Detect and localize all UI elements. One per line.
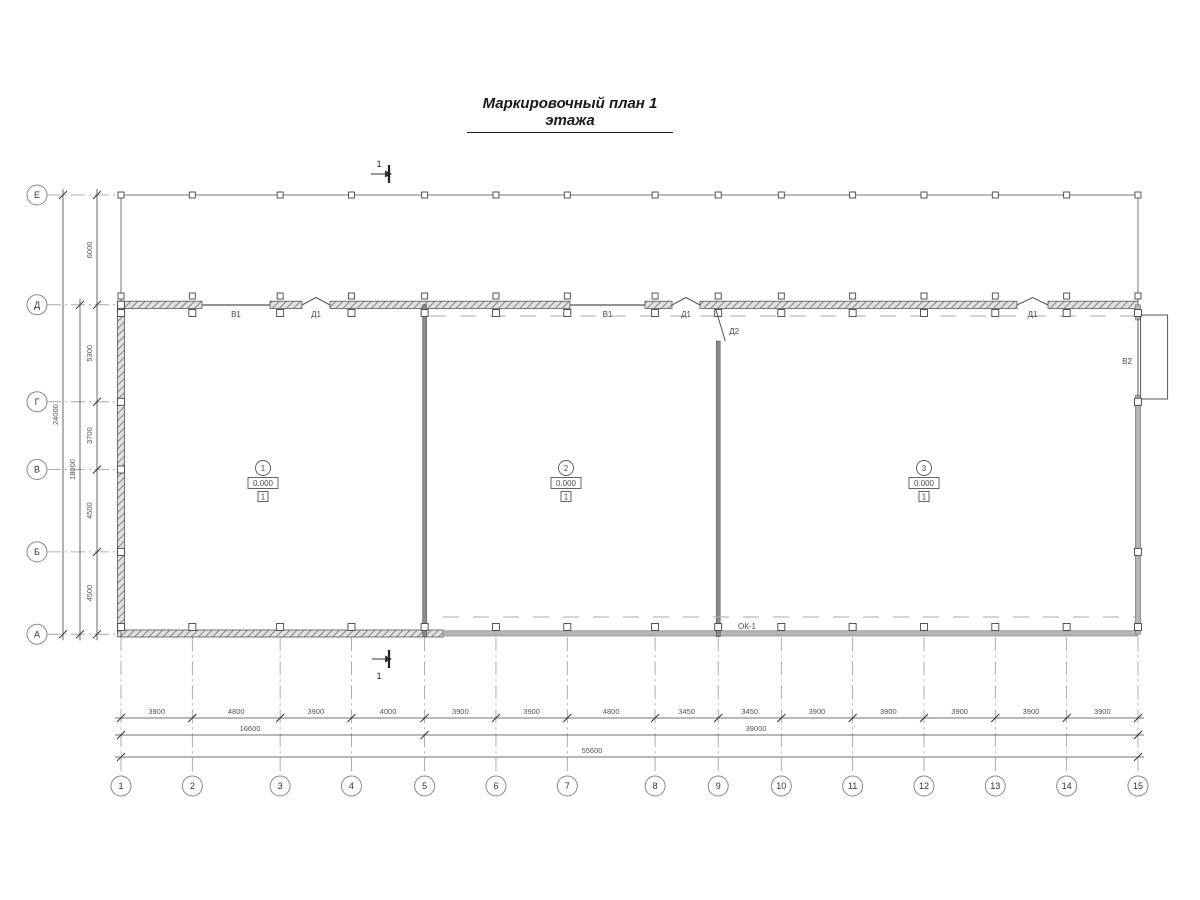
column-mark [1134, 398, 1141, 405]
door-leaf [672, 298, 700, 306]
column-mark [992, 293, 998, 299]
column-mark [1134, 310, 1141, 317]
dim-label: 4000 [380, 707, 397, 716]
dim-label: 3900 [880, 707, 897, 716]
axis-row-label: Е [34, 190, 40, 200]
column-mark [492, 624, 499, 631]
dim-total-label: 16600 [240, 724, 261, 733]
column-mark [715, 192, 721, 198]
column-mark [1064, 293, 1070, 299]
gate-label: В2 [1122, 357, 1132, 366]
room-number: 3 [922, 464, 927, 473]
column-mark [277, 624, 284, 631]
dim-label: 3900 [523, 707, 540, 716]
room-elevation: 0.000 [914, 479, 935, 488]
dim-label: 4500 [85, 502, 94, 519]
room-elevation: 0.000 [556, 479, 577, 488]
column-mark [921, 293, 927, 299]
axis-row-label: Г [35, 397, 40, 407]
window-label: В1 [603, 310, 613, 319]
column-mark [652, 310, 659, 317]
dim-label: 3900 [1023, 707, 1040, 716]
axis-col-label: 11 [848, 781, 857, 791]
room-marker: 30.0001 [909, 461, 939, 502]
gate-right-outline [1141, 315, 1168, 399]
column-mark [348, 624, 355, 631]
dim-label: 4500 [85, 585, 94, 602]
axis-bubbles: ЕДГВБА123456789101112131415 [27, 185, 1148, 796]
column-mark [992, 624, 999, 631]
column-mark [849, 624, 856, 631]
column-mark [118, 310, 125, 317]
column-mark [422, 192, 428, 198]
column-mark [564, 192, 570, 198]
axis-col-label: 13 [990, 781, 1000, 791]
column-mark [1063, 310, 1070, 317]
dim-total-label: 55600 [582, 746, 603, 755]
window-label: В1 [231, 310, 241, 319]
column-mark [421, 624, 428, 631]
dim-total-label: 18000 [68, 459, 77, 480]
column-mark [1063, 624, 1070, 631]
axis-col-label: 10 [776, 781, 786, 791]
dimensions-left: 600053003700450045002400018000 [51, 189, 101, 640]
column-mark [778, 192, 784, 198]
column-mark [118, 624, 125, 631]
column-mark [564, 293, 570, 299]
column-mark [118, 398, 125, 405]
column-mark [421, 310, 428, 317]
dim-label: 3700 [85, 427, 94, 444]
dim-label: 4800 [603, 707, 620, 716]
drawing-sheet: Маркировочный план 1 этажа В1В1Д1Д1Д1Д2В… [0, 0, 1200, 900]
column-mark [118, 466, 125, 473]
axis-col-label: 14 [1062, 781, 1072, 791]
room-marker: 10.0001 [248, 461, 278, 502]
column-mark [849, 310, 856, 317]
dim-label: 3450 [678, 707, 695, 716]
wall-interior-col9 [716, 341, 720, 637]
axis-row-label: В [34, 465, 40, 475]
column-mark [652, 293, 658, 299]
column-mark [921, 192, 927, 198]
dim-label: 5300 [85, 345, 94, 362]
wall-segment-top [121, 301, 202, 308]
column-mark [493, 293, 499, 299]
axis-col-label: 7 [565, 781, 570, 791]
column-mark [1064, 192, 1070, 198]
floor-type: 1 [261, 493, 266, 502]
column-mark [652, 192, 658, 198]
column-mark [118, 293, 124, 299]
column-mark [118, 548, 125, 555]
wall-interior-col5 [423, 305, 427, 637]
column-mark [778, 293, 784, 299]
column-mark [348, 310, 355, 317]
door-label: Д2 [729, 327, 739, 336]
section-label: 1 [376, 159, 381, 169]
column-mark [422, 293, 428, 299]
column-mark [118, 301, 125, 308]
column-mark [778, 624, 785, 631]
floor-type: 1 [922, 493, 927, 502]
column-mark [189, 192, 195, 198]
axis-col-label: 6 [493, 781, 498, 791]
openings: В1В1Д1Д1Д1Д2В2ОК-1 [202, 298, 1133, 632]
axis-col-label: 8 [653, 781, 658, 791]
axis-col-label: 15 [1133, 781, 1143, 791]
column-mark [1134, 548, 1141, 555]
axis-col-label: 1 [118, 781, 123, 791]
wall-segment-top [645, 301, 672, 308]
column-mark [1135, 192, 1141, 198]
wall-segment-top [270, 301, 302, 308]
walls [118, 301, 1168, 637]
dim-label: 3900 [951, 707, 968, 716]
dim-label: 6000 [85, 242, 94, 259]
column-mark [277, 310, 284, 317]
wall-bottom-window-band [443, 631, 1138, 636]
dim-label: 3900 [452, 707, 469, 716]
column-mark [277, 293, 283, 299]
column-mark [992, 310, 999, 317]
floor-plan-svg: В1В1Д1Д1Д1Д2В2ОК-110.000120.000130.00013… [0, 0, 1200, 900]
wall-right [1135, 395, 1140, 634]
axis-row-label: Д [34, 300, 40, 310]
column-mark [277, 192, 283, 198]
column-mark [850, 293, 856, 299]
column-mark [920, 624, 927, 631]
room-marker: 20.0001 [551, 461, 581, 502]
column-mark [715, 624, 722, 631]
door-leaf [1017, 298, 1048, 306]
window-block-label: ОК-1 [738, 622, 757, 631]
axis-col-label: 3 [278, 781, 283, 791]
room-number: 2 [564, 464, 569, 473]
door-leaf [302, 298, 330, 306]
column-mark [492, 310, 499, 317]
wall-segment-top [1048, 301, 1138, 308]
dim-label: 3900 [1094, 707, 1111, 716]
wall-segment-top [700, 301, 1017, 308]
canopy-outline [121, 195, 1138, 305]
column-mark [564, 310, 571, 317]
dim-label: 3900 [809, 707, 826, 716]
column-mark [652, 624, 659, 631]
wall-bottom-hatched [121, 630, 443, 637]
axis-col-label: 2 [190, 781, 195, 791]
dim-label: 3900 [307, 707, 324, 716]
room-number: 1 [261, 464, 266, 473]
column-mark [778, 310, 785, 317]
column-mark [118, 192, 124, 198]
column-mark [348, 192, 354, 198]
axis-col-label: 12 [919, 781, 929, 791]
dim-label: 3450 [741, 707, 758, 716]
dim-total-label: 39000 [746, 724, 767, 733]
column-mark [564, 624, 571, 631]
column-mark [189, 310, 196, 317]
dim-total-label: 24000 [51, 404, 60, 425]
column-mark [1135, 293, 1141, 299]
column-mark [348, 293, 354, 299]
axis-row-label: Б [34, 547, 40, 557]
door-label: Д1 [681, 310, 691, 319]
dimensions-bottom: 3900480039004000390039004800345034503900… [115, 707, 1144, 761]
column-mark [850, 192, 856, 198]
door-label: Д1 [1028, 310, 1038, 319]
column-mark [920, 310, 927, 317]
axis-col-label: 4 [349, 781, 354, 791]
axis-grid [47, 195, 1138, 775]
column-mark [715, 293, 721, 299]
dim-label: 4800 [228, 707, 245, 716]
column-mark [189, 624, 196, 631]
axis-col-label: 9 [716, 781, 721, 791]
axis-col-label: 5 [422, 781, 427, 791]
section-marks: 11 [371, 159, 392, 681]
room-elevation: 0.000 [253, 479, 274, 488]
section-label: 1 [376, 671, 381, 681]
door-label: Д1 [311, 310, 321, 319]
dim-label: 3900 [148, 707, 165, 716]
wall-segment-top [330, 301, 570, 308]
column-mark [493, 192, 499, 198]
column-mark [1134, 624, 1141, 631]
floor-type: 1 [564, 493, 569, 502]
axis-row-label: А [34, 629, 40, 639]
column-mark [992, 192, 998, 198]
column-mark [189, 293, 195, 299]
column-marks [118, 192, 1142, 631]
